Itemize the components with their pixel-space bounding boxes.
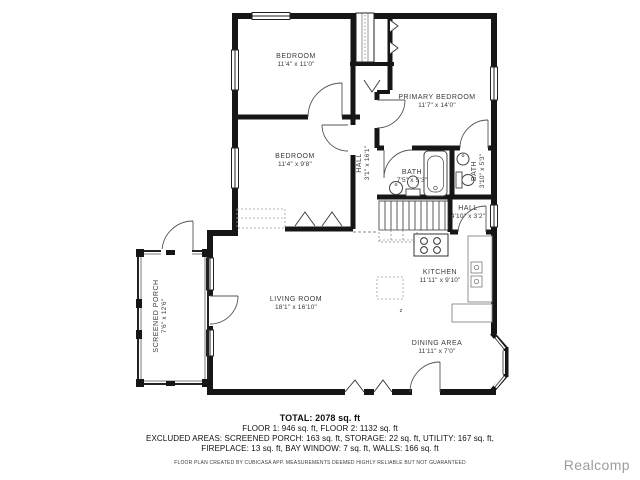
excluded-areas-line2: FIREPLACE: 13 sq. ft, BAY WINDOW: 7 sq. … — [0, 444, 640, 453]
door-bedroom-mid — [322, 125, 348, 151]
storage-opening-chevron — [322, 212, 342, 226]
floor-plan-drawing — [0, 0, 640, 480]
exterior-walls — [207, 13, 506, 392]
window-left-bedroom-top — [232, 50, 239, 90]
excluded-areas-line1: EXCLUDED AREAS: SCREENED PORCH: 163 sq. … — [0, 434, 640, 443]
screened-porch-walls — [136, 249, 210, 387]
storage-area — [237, 209, 285, 228]
stove-icon — [414, 234, 448, 256]
window-right-hall — [491, 205, 498, 227]
room-label-screened-porch: SCREENED PORCH 7'6" x 12'6" — [152, 279, 170, 352]
porch-posts — [136, 249, 210, 387]
room-label-bath-small: BATH 3'10" x 5'3" — [470, 154, 488, 188]
room-label-bedroom-top: BEDROOM 11'4" x 11'0" — [276, 52, 316, 70]
room-label-dining-area: DINING AREA 11'11" x 7'0" — [412, 339, 463, 357]
door-bath-ensuite — [460, 120, 488, 148]
kitchen-upper-cabinets — [377, 240, 413, 299]
room-label-bedroom-mid: BEDROOM 11'4" x 9'8" — [275, 152, 315, 170]
room-label-kitchen: KITCHEN 11'11" x 9'10" — [419, 268, 460, 286]
kitchen-counter-bottom — [452, 304, 492, 322]
floor-areas: FLOOR 1: 946 sq. ft, FLOOR 2: 1132 sq. f… — [0, 424, 640, 433]
room-label-hall-upper: HALL 3'1" x 16'1" — [355, 146, 373, 180]
primary-closet-chevron — [390, 42, 398, 54]
primary-closet-chevron — [390, 20, 398, 32]
room-label-living-room: LIVING ROOM 18'1" x 16'10" — [270, 295, 322, 313]
door-bedroom-top — [308, 83, 342, 117]
area-summary: TOTAL: 2078 sq. ft FLOOR 1: 946 sq. ft, … — [0, 413, 640, 466]
bay-window — [495, 338, 504, 387]
total-area: TOTAL: 2078 sq. ft — [0, 413, 640, 423]
floor-plan-page: BEDROOM 11'4" x 11'0" BEDROOM 11'4" x 9'… — [0, 0, 640, 480]
window-top-bedroom — [252, 13, 290, 20]
realcomp-watermark: Realcomp — [564, 457, 630, 473]
wall-ticks — [300, 14, 333, 393]
kitchen-counter-right — [468, 236, 492, 302]
room-label-primary-bedroom: PRIMARY BEDROOM 11'7" x 14'0" — [398, 93, 475, 111]
storage-opening-chevron — [295, 212, 315, 226]
door-porch-exterior — [162, 221, 193, 251]
window-right-primary — [491, 67, 498, 100]
floor-change-marker: z — [400, 308, 403, 314]
utility-shaft — [356, 13, 374, 62]
door-dining-exterior — [410, 362, 440, 392]
door-porch-living — [210, 296, 238, 324]
room-label-hall-lower: HALL 4'10" x 3'2" — [451, 204, 485, 222]
window-left-bedroom-mid — [232, 148, 239, 188]
disclaimer: FLOOR PLAN CREATED BY CUBICASA APP. MEAS… — [0, 460, 640, 466]
room-label-bath-main: BATH 7'5" x 5'3" — [397, 168, 428, 186]
